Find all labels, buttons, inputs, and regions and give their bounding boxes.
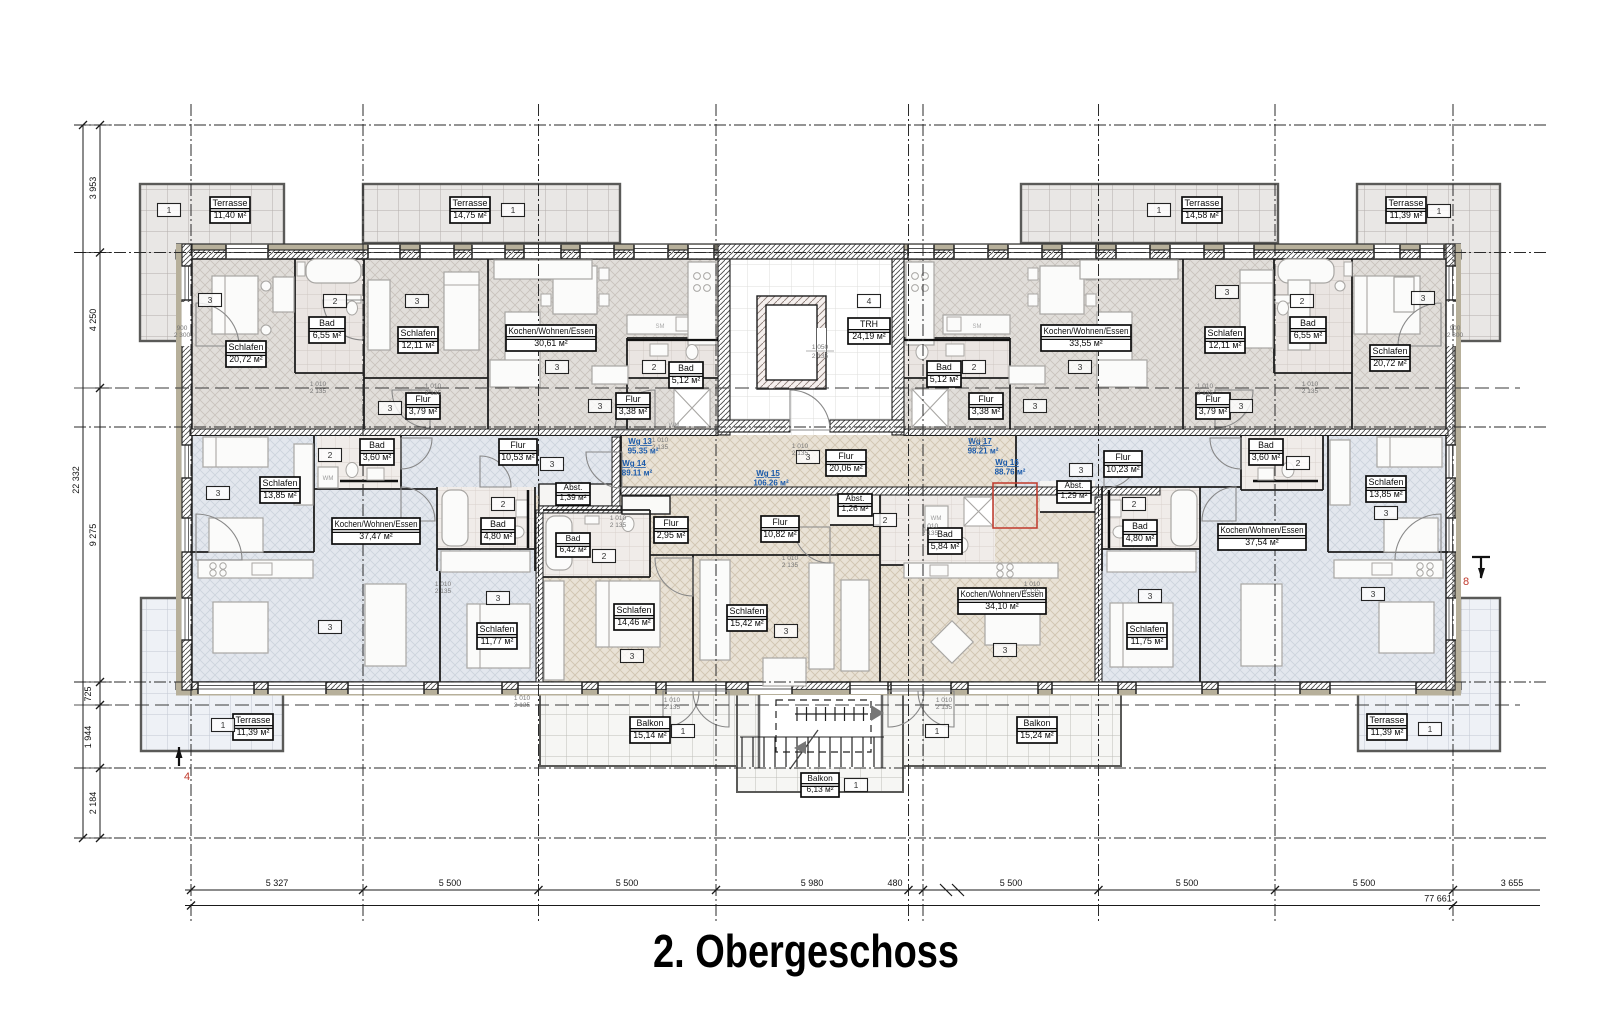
svg-text:Bad: Bad — [1258, 440, 1274, 450]
svg-text:5 980: 5 980 — [801, 878, 824, 888]
svg-text:2 300: 2 300 — [174, 332, 191, 339]
svg-text:Flur: Flur — [663, 518, 678, 528]
svg-text:5 500: 5 500 — [1000, 878, 1023, 888]
svg-text:Bad: Bad — [490, 519, 506, 529]
svg-text:2 135: 2 135 — [792, 450, 809, 457]
svg-text:20,72 м²: 20,72 м² — [229, 354, 263, 364]
svg-text:3: 3 — [388, 403, 393, 413]
svg-text:106.26 м²: 106.26 м² — [753, 479, 789, 488]
svg-text:3: 3 — [415, 296, 420, 306]
svg-text:1: 1 — [1437, 206, 1442, 216]
svg-text:3: 3 — [1225, 287, 1230, 297]
svg-text:13,85 м²: 13,85 м² — [1369, 489, 1403, 499]
svg-text:1: 1 — [1157, 205, 1162, 215]
svg-text:34,10 м²: 34,10 м² — [985, 601, 1019, 611]
svg-text:15,14 м²: 15,14 м² — [633, 730, 667, 740]
svg-text:14,58 м²: 14,58 м² — [1185, 210, 1219, 220]
svg-text:WM: WM — [931, 516, 942, 522]
svg-text:Schlafen: Schlafen — [730, 606, 765, 616]
svg-text:14,46 м²: 14,46 м² — [617, 617, 651, 627]
svg-text:1 050: 1 050 — [812, 344, 829, 351]
svg-text:1 010: 1 010 — [435, 581, 452, 588]
svg-text:2 135: 2 135 — [310, 388, 327, 395]
svg-text:2 135: 2 135 — [435, 588, 452, 595]
svg-text:Balkon: Balkon — [1024, 718, 1051, 728]
svg-text:2: 2 — [333, 296, 338, 306]
svg-text:Bad: Bad — [1300, 318, 1316, 328]
svg-text:900: 900 — [1450, 325, 1461, 332]
svg-text:1: 1 — [935, 726, 940, 736]
svg-text:Wg 13: Wg 13 — [628, 437, 652, 446]
svg-text:Terrasse: Terrasse — [236, 715, 271, 725]
svg-text:Schlafen: Schlafen — [1208, 328, 1243, 338]
svg-text:2 135: 2 135 — [1197, 390, 1214, 397]
svg-text:1: 1 — [681, 726, 686, 736]
svg-text:3: 3 — [1421, 293, 1426, 303]
svg-text:1,39 м²: 1,39 м² — [560, 492, 587, 502]
svg-text:2: 2 — [1132, 499, 1137, 509]
svg-text:3: 3 — [1371, 589, 1376, 599]
svg-text:2: 2 — [652, 362, 657, 372]
svg-text:Terrasse: Terrasse — [1389, 198, 1424, 208]
svg-text:12,11 м²: 12,11 м² — [402, 340, 435, 350]
svg-text:1 010: 1 010 — [1302, 381, 1319, 388]
svg-text:3: 3 — [1384, 508, 1389, 518]
svg-text:2: 2 — [501, 499, 506, 509]
svg-text:37,54 м²: 37,54 м² — [1245, 537, 1279, 547]
svg-text:Bad: Bad — [678, 363, 694, 373]
svg-text:14,75 м²: 14,75 м² — [453, 210, 487, 220]
svg-text:10,53 м²: 10,53 м² — [501, 452, 535, 462]
svg-text:1 010: 1 010 — [664, 697, 681, 704]
svg-text:1 944: 1 944 — [83, 726, 93, 749]
svg-text:2 135: 2 135 — [610, 522, 627, 529]
svg-text:Kochen/Wohnen/Essen: Kochen/Wohnen/Essen — [1044, 326, 1129, 336]
svg-text:2 135: 2 135 — [812, 353, 829, 360]
svg-text:Schlafen: Schlafen — [480, 624, 515, 634]
svg-text:2: 2 — [1296, 458, 1301, 468]
svg-text:1 010: 1 010 — [969, 437, 986, 444]
svg-text:Flur: Flur — [772, 517, 787, 527]
svg-text:Balkon: Balkon — [637, 718, 664, 728]
svg-text:TRH: TRH — [860, 319, 878, 329]
svg-text:3: 3 — [1078, 362, 1083, 372]
svg-text:Flur: Flur — [510, 440, 525, 450]
svg-text:1: 1 — [854, 780, 859, 790]
svg-text:6,55 м²: 6,55 м² — [313, 330, 342, 340]
svg-text:Abst.: Abst. — [1065, 480, 1084, 490]
svg-text:Kochen/Wohnen/Essen: Kochen/Wohnen/Essen — [335, 519, 418, 529]
svg-text:480: 480 — [887, 878, 902, 888]
svg-text:4: 4 — [867, 296, 872, 306]
svg-text:2 135: 2 135 — [514, 702, 531, 709]
svg-text:5 500: 5 500 — [439, 878, 462, 888]
svg-text:Schlafen: Schlafen — [1369, 477, 1404, 487]
svg-text:Schlafen: Schlafen — [229, 342, 264, 352]
svg-text:1 010: 1 010 — [652, 437, 669, 444]
svg-text:1 010: 1 010 — [792, 443, 809, 450]
svg-text:Schlafen: Schlafen — [617, 605, 652, 615]
svg-text:1 010: 1 010 — [1197, 383, 1214, 390]
svg-text:2 135: 2 135 — [936, 704, 953, 711]
svg-text:37,47 м²: 37,47 м² — [359, 531, 393, 541]
svg-text:Wg 16: Wg 16 — [995, 458, 1019, 467]
svg-text:Terrasse: Terrasse — [1370, 715, 1405, 725]
svg-text:2 135: 2 135 — [969, 444, 986, 451]
svg-text:88.76 м²: 88.76 м² — [995, 468, 1026, 477]
svg-text:Bad: Bad — [566, 533, 581, 543]
svg-text:6,42 м²: 6,42 м² — [560, 544, 587, 554]
svg-text:Bad: Bad — [936, 362, 952, 372]
svg-text:5,12 м²: 5,12 м² — [672, 375, 701, 385]
svg-text:1: 1 — [1428, 724, 1433, 734]
svg-text:2,95 м²: 2,95 м² — [657, 530, 686, 540]
svg-text:1 010: 1 010 — [514, 695, 531, 702]
svg-text:2: 2 — [1300, 296, 1305, 306]
svg-text:SM: SM — [656, 324, 665, 330]
svg-text:11,39 м²: 11,39 м² — [1371, 727, 1404, 737]
svg-text:5,12 м²: 5,12 м² — [930, 374, 959, 384]
svg-text:30,61 м²: 30,61 м² — [534, 338, 568, 348]
svg-text:3: 3 — [784, 626, 789, 636]
svg-text:11,39 м²: 11,39 м² — [1390, 210, 1423, 220]
svg-text:3: 3 — [1003, 645, 1008, 655]
svg-text:1 010: 1 010 — [310, 381, 327, 388]
svg-text:6,13 м²: 6,13 м² — [807, 784, 834, 794]
svg-text:WM: WM — [323, 476, 334, 482]
svg-text:1 010: 1 010 — [782, 555, 799, 562]
svg-text:Flur: Flur — [625, 394, 640, 404]
svg-text:15,42 м²: 15,42 м² — [730, 618, 764, 628]
svg-text:4: 4 — [184, 771, 190, 783]
svg-text:1: 1 — [511, 205, 516, 215]
svg-text:3: 3 — [216, 488, 221, 498]
svg-text:Abst.: Abst. — [564, 482, 583, 492]
svg-text:Bad: Bad — [1132, 521, 1148, 531]
svg-text:3: 3 — [496, 593, 501, 603]
svg-text:2 135: 2 135 — [652, 444, 669, 451]
svg-text:2 135: 2 135 — [782, 562, 799, 569]
svg-text:2 135: 2 135 — [1024, 588, 1041, 595]
svg-text:3: 3 — [1239, 401, 1244, 411]
svg-text:2: 2 — [883, 515, 888, 525]
svg-text:2: 2 — [972, 362, 977, 372]
svg-text:Abst.: Abst. — [846, 493, 865, 503]
svg-text:2 135: 2 135 — [1302, 388, 1319, 395]
svg-text:5,84 м²: 5,84 м² — [931, 541, 960, 551]
svg-text:Schlafen: Schlafen — [1130, 624, 1165, 634]
svg-text:2 135: 2 135 — [664, 704, 681, 711]
svg-text:1: 1 — [221, 720, 226, 730]
svg-text:3: 3 — [1148, 591, 1153, 601]
svg-text:20,72 м²: 20,72 м² — [1373, 358, 1407, 368]
svg-text:3,38 м²: 3,38 м² — [619, 406, 648, 416]
svg-text:WM: WM — [669, 423, 680, 429]
svg-text:1 010: 1 010 — [610, 515, 627, 522]
svg-text:Bad: Bad — [369, 440, 385, 450]
svg-text:10,82 м²: 10,82 м² — [763, 529, 797, 539]
svg-text:4,80 м²: 4,80 м² — [484, 531, 513, 541]
svg-text:3: 3 — [1033, 401, 1038, 411]
svg-text:11,77 м²: 11,77 м² — [481, 636, 514, 646]
svg-text:2 300: 2 300 — [1447, 332, 1464, 339]
svg-text:Bad: Bad — [937, 529, 953, 539]
svg-text:3,60 м²: 3,60 м² — [363, 452, 392, 462]
svg-text:4,80 м²: 4,80 м² — [1126, 533, 1155, 543]
svg-text:6,55 м²: 6,55 м² — [1294, 330, 1323, 340]
svg-text:11,75 м²: 11,75 м² — [1131, 636, 1164, 646]
svg-text:10,23 м²: 10,23 м² — [1106, 464, 1140, 474]
svg-text:725: 725 — [83, 686, 93, 701]
svg-text:Terrasse: Terrasse — [213, 198, 248, 208]
svg-text:20,06 м²: 20,06 м² — [829, 463, 863, 473]
svg-text:3,79 м²: 3,79 м² — [1199, 406, 1228, 416]
svg-text:3: 3 — [598, 401, 603, 411]
svg-text:2 135: 2 135 — [922, 530, 939, 537]
svg-text:Kochen/Wohnen/Essen: Kochen/Wohnen/Essen — [1221, 525, 1304, 535]
svg-text:Flur: Flur — [838, 451, 853, 461]
svg-text:1 010: 1 010 — [936, 697, 953, 704]
svg-text:Flur: Flur — [1115, 452, 1130, 462]
svg-text:24,19 м²: 24,19 м² — [852, 331, 886, 341]
svg-text:1 010: 1 010 — [425, 383, 442, 390]
svg-text:11,40 м²: 11,40 м² — [214, 210, 247, 220]
svg-text:3: 3 — [328, 622, 333, 632]
svg-text:1: 1 — [167, 205, 172, 215]
svg-text:1 010: 1 010 — [1024, 581, 1041, 588]
svg-text:5 500: 5 500 — [616, 878, 639, 888]
svg-text:3: 3 — [550, 459, 555, 469]
svg-text:3: 3 — [1079, 465, 1084, 475]
svg-text:3: 3 — [208, 295, 213, 305]
svg-text:SM: SM — [973, 324, 982, 330]
svg-text:Flur: Flur — [978, 394, 993, 404]
svg-text:Terrasse: Terrasse — [453, 198, 488, 208]
svg-text:2: 2 — [602, 551, 607, 561]
svg-text:Terrasse: Terrasse — [1185, 198, 1220, 208]
svg-text:Schlafen: Schlafen — [263, 478, 298, 488]
svg-text:Wg 15: Wg 15 — [756, 469, 780, 478]
svg-text:3: 3 — [630, 651, 635, 661]
svg-text:3 655: 3 655 — [1501, 878, 1524, 888]
svg-text:Bad: Bad — [319, 318, 335, 328]
svg-text:5 500: 5 500 — [1176, 878, 1199, 888]
svg-text:3: 3 — [555, 362, 560, 372]
svg-text:1 010: 1 010 — [922, 523, 939, 530]
svg-text:2. Obergeschoss: 2. Obergeschoss — [653, 925, 959, 977]
svg-text:15,24 м²: 15,24 м² — [1020, 730, 1054, 740]
svg-text:5 327: 5 327 — [266, 878, 289, 888]
svg-text:8: 8 — [1463, 576, 1469, 588]
svg-text:3,38 м²: 3,38 м² — [972, 406, 1001, 416]
svg-text:33,55 м²: 33,55 м² — [1069, 338, 1103, 348]
svg-text:1,26 м²: 1,26 м² — [842, 503, 869, 513]
svg-text:12,11 м²: 12,11 м² — [1209, 340, 1242, 350]
svg-text:Wg 14: Wg 14 — [622, 459, 646, 468]
svg-text:3 953: 3 953 — [88, 177, 98, 200]
svg-text:3,60 м²: 3,60 м² — [1252, 452, 1281, 462]
svg-text:77 661: 77 661 — [1424, 894, 1452, 904]
svg-text:3,79 м²: 3,79 м² — [409, 406, 438, 416]
svg-text:89.11 м²: 89.11 м² — [622, 469, 653, 478]
svg-text:4 250: 4 250 — [88, 309, 98, 332]
svg-text:Schlafen: Schlafen — [401, 328, 436, 338]
svg-text:Schlafen: Schlafen — [1373, 346, 1408, 356]
svg-text:2 184: 2 184 — [88, 792, 98, 815]
svg-text:22 332: 22 332 — [71, 466, 81, 494]
svg-text:Kochen/Wohnen/Essen: Kochen/Wohnen/Essen — [509, 326, 594, 336]
svg-text:2: 2 — [328, 450, 333, 460]
svg-text:5 500: 5 500 — [1353, 878, 1376, 888]
svg-text:1,29 м²: 1,29 м² — [1061, 490, 1088, 500]
svg-text:2 135: 2 135 — [425, 390, 442, 397]
svg-text:900: 900 — [177, 325, 188, 332]
svg-text:13,85 м²: 13,85 м² — [263, 490, 297, 500]
svg-text:Balkon: Balkon — [807, 773, 833, 783]
svg-text:11,39 м²: 11,39 м² — [237, 727, 270, 737]
svg-text:9 275: 9 275 — [88, 524, 98, 547]
